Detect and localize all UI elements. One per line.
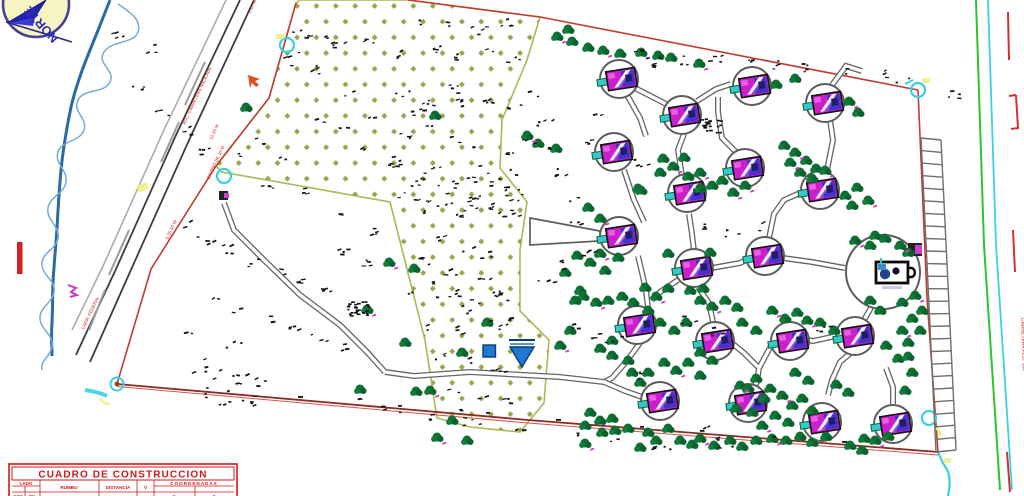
- svg-text:LADO: LADO: [19, 481, 32, 486]
- svg-text:COORDENADAS: COORDENADAS: [170, 481, 218, 486]
- svg-text:DISTANCIA: DISTANCIA: [106, 485, 131, 490]
- svg-text:CUADRO DE CONSTRUCCION: CUADRO DE CONSTRUCCION: [38, 470, 207, 481]
- svg-text:RUMBO: RUMBO: [60, 485, 78, 490]
